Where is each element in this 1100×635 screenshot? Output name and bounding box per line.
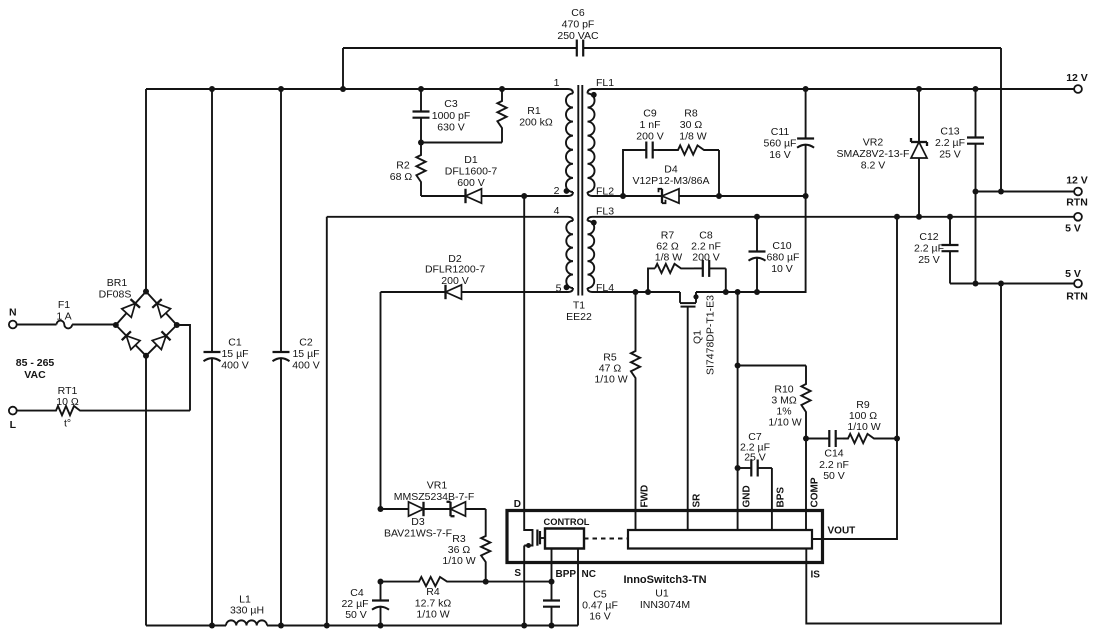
svg-text:1/10 W: 1/10 W	[594, 374, 627, 386]
svg-text:C3: C3	[444, 98, 458, 110]
svg-text:V12P12-M3/86A: V12P12-M3/86A	[632, 175, 709, 187]
svg-text:D3: D3	[411, 516, 425, 528]
svg-text:630 V: 630 V	[437, 122, 464, 134]
svg-text:5 V: 5 V	[1065, 223, 1081, 235]
svg-text:1/10 W: 1/10 W	[442, 555, 475, 567]
svg-text:C14: C14	[824, 448, 843, 460]
svg-text:NC: NC	[582, 569, 596, 580]
svg-text:U1: U1	[655, 588, 669, 600]
svg-text:25 V: 25 V	[744, 452, 766, 464]
svg-text:VOUT: VOUT	[828, 526, 856, 537]
svg-text:EE22: EE22	[566, 311, 592, 323]
svg-text:RTN: RTN	[1066, 291, 1088, 303]
svg-text:25 V: 25 V	[918, 254, 940, 266]
svg-text:15 µF: 15 µF	[221, 348, 248, 360]
svg-text:560 µF: 560 µF	[764, 138, 797, 150]
svg-text:T1: T1	[573, 300, 585, 312]
svg-text:1/8 W: 1/8 W	[655, 252, 683, 264]
svg-text:IS: IS	[811, 570, 821, 581]
svg-text:30 Ω: 30 Ω	[680, 119, 703, 131]
svg-text:1/10 W: 1/10 W	[847, 421, 880, 433]
svg-text:330 µH: 330 µH	[230, 605, 264, 617]
svg-text:D1: D1	[464, 154, 478, 166]
svg-text:16 V: 16 V	[589, 611, 611, 623]
svg-text:C10: C10	[772, 240, 791, 252]
svg-text:S: S	[514, 568, 521, 579]
svg-text:R1: R1	[527, 105, 541, 117]
svg-text:COMP: COMP	[810, 477, 821, 507]
svg-text:FWD: FWD	[640, 485, 651, 508]
svg-text:C1: C1	[228, 337, 242, 349]
svg-text:12 V: 12 V	[1066, 175, 1088, 187]
svg-text:680 µF: 680 µF	[767, 252, 800, 264]
svg-text:C2: C2	[299, 337, 313, 349]
svg-text:SI7478DP-T1-E3: SI7478DP-T1-E3	[705, 295, 717, 375]
svg-text:200 V: 200 V	[692, 252, 719, 264]
svg-text:BPP: BPP	[556, 569, 577, 580]
svg-text:200 kΩ: 200 kΩ	[519, 117, 553, 129]
svg-text:D4: D4	[664, 164, 678, 176]
svg-text:Q1: Q1	[692, 330, 704, 344]
svg-text:250 VAC: 250 VAC	[557, 30, 599, 42]
svg-text:SMAZ8V2-13-F: SMAZ8V2-13-F	[837, 148, 910, 160]
svg-text:1/10 W: 1/10 W	[768, 417, 801, 429]
svg-text:DFL1600-7: DFL1600-7	[445, 166, 498, 178]
svg-text:50 V: 50 V	[823, 470, 845, 482]
svg-text:400 V: 400 V	[292, 360, 319, 372]
svg-text:600 V: 600 V	[457, 177, 484, 189]
svg-text:SR: SR	[692, 493, 703, 508]
svg-text:VAC: VAC	[24, 369, 46, 381]
svg-text:10 V: 10 V	[771, 263, 793, 275]
svg-text:InnoSwitch3-TN: InnoSwitch3-TN	[623, 574, 706, 586]
svg-text:C12: C12	[919, 231, 938, 243]
svg-text:1 nF: 1 nF	[639, 119, 660, 131]
svg-text:2.2 µF: 2.2 µF	[935, 137, 965, 149]
svg-text:400 V: 400 V	[221, 360, 248, 372]
svg-text:1/8 W: 1/8 W	[679, 131, 707, 143]
svg-text:68 Ω: 68 Ω	[390, 171, 413, 183]
svg-text:N: N	[9, 307, 17, 319]
svg-text:t°: t°	[64, 418, 71, 430]
svg-text:8.2 V: 8.2 V	[861, 160, 886, 172]
svg-text:MMSZ5234B-7-F: MMSZ5234B-7-F	[394, 491, 475, 503]
svg-text:16 V: 16 V	[769, 149, 791, 161]
svg-text:FL3: FL3	[596, 206, 614, 218]
svg-text:CONTROL: CONTROL	[544, 517, 590, 527]
svg-text:1000 pF: 1000 pF	[432, 110, 471, 122]
svg-text:VR1: VR1	[427, 480, 448, 492]
svg-text:R4: R4	[426, 586, 440, 598]
svg-text:200 V: 200 V	[441, 275, 468, 287]
svg-text:50 V: 50 V	[345, 609, 367, 621]
svg-text:C6: C6	[571, 7, 585, 19]
svg-text:BAV21WS-7-F: BAV21WS-7-F	[384, 528, 452, 540]
svg-text:RTN: RTN	[1066, 197, 1088, 209]
svg-text:DF08S: DF08S	[99, 289, 132, 301]
svg-text:C13: C13	[940, 126, 959, 138]
svg-text:D: D	[514, 499, 521, 510]
svg-text:VR2: VR2	[863, 137, 884, 149]
svg-text:1/10 W: 1/10 W	[416, 609, 449, 621]
svg-text:L: L	[10, 419, 17, 431]
svg-text:GND: GND	[742, 485, 753, 507]
svg-text:25 V: 25 V	[939, 149, 961, 161]
svg-text:BR1: BR1	[107, 277, 128, 289]
svg-text:4: 4	[554, 205, 560, 217]
svg-text:5 V: 5 V	[1065, 268, 1081, 280]
svg-text:BPS: BPS	[776, 487, 787, 508]
svg-text:INN3074M: INN3074M	[640, 599, 690, 611]
svg-text:F1: F1	[58, 299, 70, 311]
svg-text:15 µF: 15 µF	[292, 348, 319, 360]
svg-text:R2: R2	[396, 160, 410, 172]
svg-text:C11: C11	[771, 126, 790, 138]
svg-text:1 A: 1 A	[56, 311, 71, 323]
svg-text:1: 1	[554, 77, 560, 89]
svg-text:10 Ω: 10 Ω	[56, 396, 79, 408]
svg-text:200 V: 200 V	[636, 131, 663, 143]
svg-text:85 - 265: 85 - 265	[16, 357, 55, 369]
svg-text:DFLR1200-7: DFLR1200-7	[425, 264, 485, 276]
svg-text:2: 2	[554, 185, 560, 197]
svg-text:2.2 µF: 2.2 µF	[914, 243, 944, 255]
svg-text:470 pF: 470 pF	[562, 19, 595, 31]
svg-text:R8: R8	[684, 108, 698, 120]
svg-text:FL1: FL1	[596, 77, 614, 89]
svg-text:C9: C9	[643, 108, 657, 120]
svg-text:12 V: 12 V	[1066, 72, 1088, 84]
